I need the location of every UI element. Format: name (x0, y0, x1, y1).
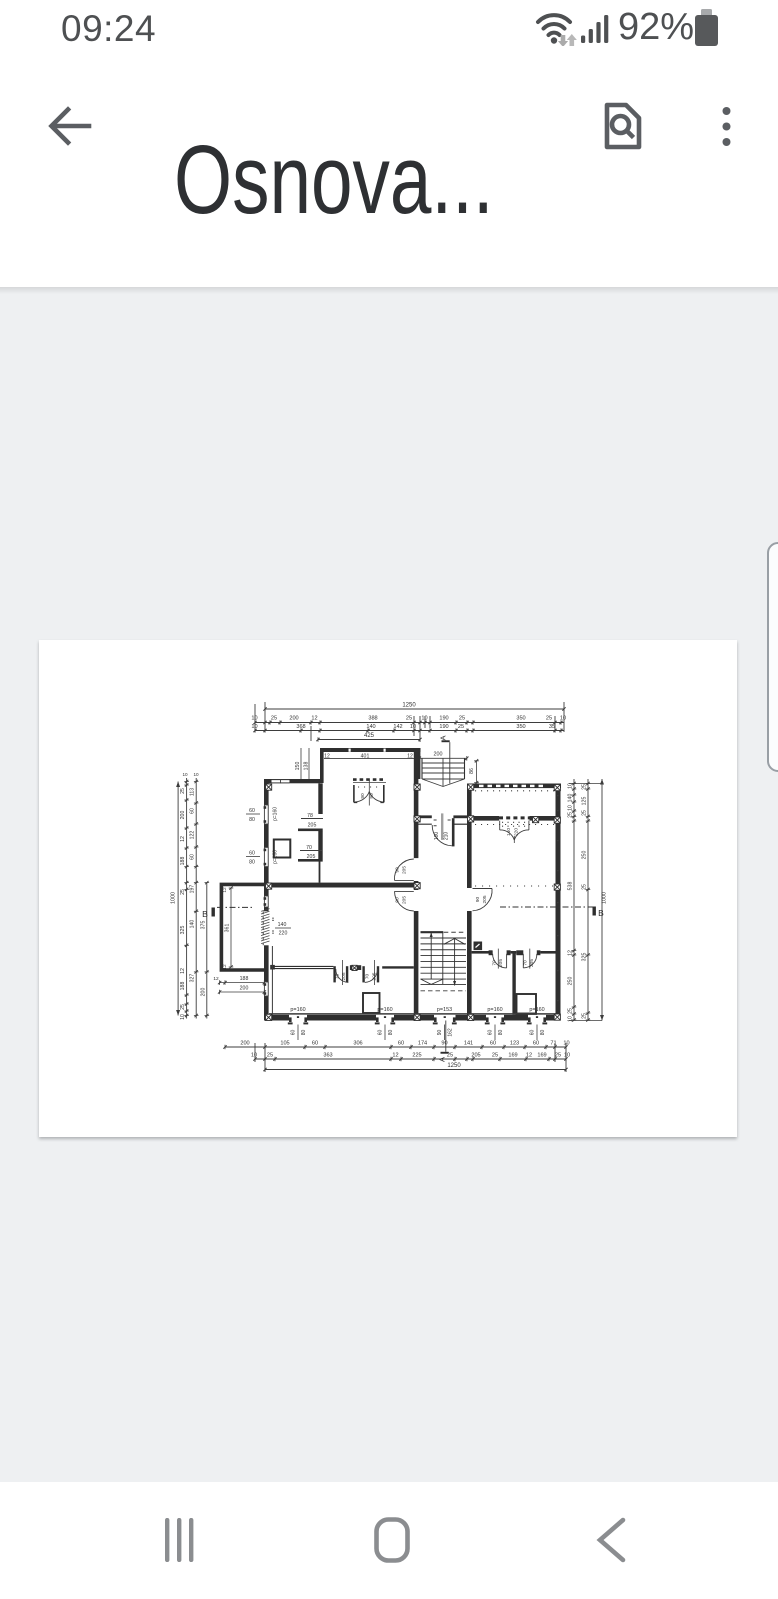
svg-text:138: 138 (304, 762, 310, 771)
svg-text:188: 188 (180, 982, 186, 991)
svg-text:123: 123 (510, 1041, 519, 1047)
svg-text:140: 140 (190, 920, 196, 929)
svg-text:10: 10 (251, 716, 257, 722)
svg-text:225: 225 (412, 1053, 421, 1059)
svg-text:425: 425 (364, 733, 375, 739)
svg-text:375: 375 (200, 921, 206, 930)
svg-text:205: 205 (307, 854, 316, 860)
svg-text:25: 25 (582, 884, 588, 890)
svg-text:25: 25 (568, 812, 574, 818)
svg-text:220: 220 (513, 828, 519, 836)
svg-text:78: 78 (307, 813, 313, 819)
svg-text:12: 12 (392, 1053, 398, 1059)
svg-text:60: 60 (312, 1041, 318, 1047)
svg-text:205: 205 (529, 959, 535, 967)
svg-text:10: 10 (180, 1014, 186, 1020)
svg-text:10: 10 (560, 716, 566, 722)
svg-text:80: 80 (301, 1030, 307, 1036)
svg-text:25: 25 (582, 1013, 588, 1019)
svg-text:174: 174 (418, 1041, 427, 1047)
svg-text:60: 60 (291, 1030, 297, 1036)
svg-text:122: 122 (190, 831, 196, 840)
svg-text:p=160: p=160 (487, 1007, 502, 1013)
svg-text:70: 70 (365, 974, 371, 980)
svg-text:80: 80 (249, 860, 255, 866)
svg-text:60: 60 (249, 851, 255, 857)
svg-text:388: 388 (368, 716, 377, 722)
svg-text:538: 538 (568, 882, 574, 891)
svg-text:361: 361 (225, 924, 231, 933)
svg-text:25: 25 (582, 810, 588, 816)
svg-text:35: 35 (549, 724, 555, 730)
svg-text:25: 25 (459, 716, 465, 722)
svg-text:205: 205 (471, 1053, 480, 1059)
svg-text:p=153: p=153 (437, 1007, 452, 1013)
svg-text:140: 140 (366, 724, 375, 730)
svg-text:B: B (202, 909, 208, 919)
svg-text:140: 140 (568, 794, 574, 803)
svg-text:205: 205 (341, 972, 347, 980)
svg-text:25: 25 (180, 1004, 186, 1010)
svg-text:142: 142 (393, 724, 402, 730)
svg-text:200: 200 (434, 752, 443, 758)
svg-text:350: 350 (516, 724, 525, 730)
svg-text:205: 205 (402, 896, 408, 904)
svg-text:86: 86 (469, 768, 475, 774)
svg-text:25: 25 (555, 1053, 561, 1059)
svg-text:25: 25 (458, 724, 464, 730)
svg-text:12: 12 (180, 968, 186, 974)
svg-text:71: 71 (550, 1041, 556, 1047)
svg-text:12: 12 (568, 950, 574, 956)
svg-text:105: 105 (280, 1041, 289, 1047)
svg-text:250: 250 (582, 851, 588, 860)
svg-text:25: 25 (180, 788, 186, 794)
svg-text:60: 60 (490, 1041, 496, 1047)
svg-text:90: 90 (441, 1041, 447, 1047)
svg-text:100: 100 (434, 832, 440, 841)
svg-text:80: 80 (249, 817, 255, 823)
svg-text:220: 220 (279, 931, 288, 937)
svg-text:90: 90 (395, 897, 401, 903)
svg-text:169: 169 (508, 1053, 517, 1059)
svg-text:10: 10 (182, 772, 188, 777)
svg-text:60: 60 (190, 808, 196, 814)
svg-text:210: 210 (443, 832, 449, 841)
svg-text:12: 12 (222, 887, 228, 893)
svg-text:78: 78 (335, 974, 341, 980)
svg-text:70: 70 (306, 845, 312, 851)
svg-text:1250: 1250 (402, 703, 416, 709)
svg-text:200: 200 (180, 811, 186, 820)
svg-text:p=160: p=160 (273, 807, 279, 821)
svg-text:363: 363 (323, 1053, 332, 1059)
svg-text:60: 60 (530, 1030, 536, 1036)
svg-text:306: 306 (353, 1041, 362, 1047)
svg-text:12: 12 (311, 716, 317, 722)
svg-text:140: 140 (506, 828, 512, 836)
svg-text:60: 60 (398, 1041, 404, 1047)
svg-text:p=160: p=160 (290, 1007, 305, 1013)
svg-text:80: 80 (388, 1030, 394, 1036)
svg-text:10: 10 (421, 716, 427, 722)
svg-text:p=160: p=160 (377, 1007, 392, 1013)
svg-text:125: 125 (582, 797, 588, 806)
svg-text:90: 90 (360, 793, 366, 799)
svg-text:60: 60 (190, 854, 196, 860)
svg-text:25: 25 (568, 1008, 574, 1014)
svg-text:1250: 1250 (447, 1063, 461, 1069)
svg-text:190: 190 (439, 724, 448, 730)
svg-text:90: 90 (475, 897, 481, 903)
svg-text:141: 141 (464, 1041, 473, 1047)
svg-text:200: 200 (240, 1041, 249, 1047)
svg-text:205: 205 (402, 866, 408, 874)
svg-text:10: 10 (568, 1016, 574, 1022)
svg-text:12: 12 (526, 1053, 532, 1059)
svg-text:113: 113 (190, 788, 196, 796)
svg-text:B: B (598, 908, 604, 918)
svg-text:169: 169 (537, 1053, 546, 1059)
svg-text:p=160: p=160 (529, 1007, 544, 1013)
svg-text:90: 90 (437, 1030, 443, 1036)
svg-text:60: 60 (533, 1041, 539, 1047)
svg-text:12: 12 (180, 836, 186, 842)
svg-text:80: 80 (498, 1030, 504, 1036)
svg-text:90: 90 (395, 867, 401, 873)
svg-text:12: 12 (222, 964, 228, 970)
svg-text:12: 12 (213, 976, 219, 982)
svg-text:200: 200 (289, 716, 298, 722)
svg-text:200: 200 (200, 988, 206, 997)
svg-text:10: 10 (251, 724, 257, 730)
svg-text:350: 350 (516, 716, 525, 722)
svg-text:10: 10 (251, 1053, 257, 1059)
svg-text:60: 60 (249, 808, 255, 814)
svg-text:327: 327 (190, 974, 196, 983)
svg-text:25: 25 (492, 1053, 498, 1059)
svg-text:188: 188 (240, 976, 249, 982)
svg-text:10: 10 (568, 805, 574, 811)
svg-text:188: 188 (180, 857, 186, 866)
svg-text:200: 200 (240, 986, 249, 992)
svg-text:A: A (439, 735, 448, 740)
svg-text:70: 70 (492, 960, 498, 966)
svg-text:205: 205 (372, 972, 378, 980)
svg-text:205: 205 (308, 823, 317, 829)
svg-text:1000: 1000 (602, 892, 608, 904)
svg-text:140: 140 (278, 922, 287, 928)
svg-text:80: 80 (540, 1030, 546, 1036)
svg-text:205: 205 (498, 959, 504, 967)
svg-text:10: 10 (193, 772, 199, 777)
svg-text:401: 401 (361, 754, 370, 760)
svg-text:10: 10 (563, 1041, 569, 1047)
svg-text:10: 10 (564, 1053, 570, 1059)
svg-text:25: 25 (271, 716, 277, 722)
svg-text:60: 60 (378, 1030, 384, 1036)
svg-text:25: 25 (180, 889, 186, 895)
svg-text:1000: 1000 (171, 892, 177, 904)
svg-text:250: 250 (568, 977, 574, 986)
svg-text:10: 10 (410, 724, 416, 730)
svg-text:205: 205 (482, 895, 488, 903)
svg-text:190: 190 (439, 716, 448, 722)
svg-text:325: 325 (180, 926, 186, 935)
svg-text:25: 25 (546, 716, 552, 722)
svg-text:A: A (438, 1057, 447, 1062)
svg-text:25: 25 (406, 716, 412, 722)
svg-text:150: 150 (295, 762, 301, 771)
svg-text:197: 197 (190, 885, 196, 894)
svg-text:368: 368 (296, 724, 305, 730)
svg-text:25: 25 (582, 784, 588, 790)
svg-text:60: 60 (488, 1030, 494, 1036)
svg-text:90: 90 (369, 793, 375, 799)
svg-text:70: 70 (523, 960, 529, 966)
svg-text:25: 25 (267, 1053, 273, 1059)
svg-text:325: 325 (582, 953, 588, 962)
svg-text:162: 162 (448, 1028, 454, 1037)
svg-text:p=160: p=160 (273, 850, 279, 864)
